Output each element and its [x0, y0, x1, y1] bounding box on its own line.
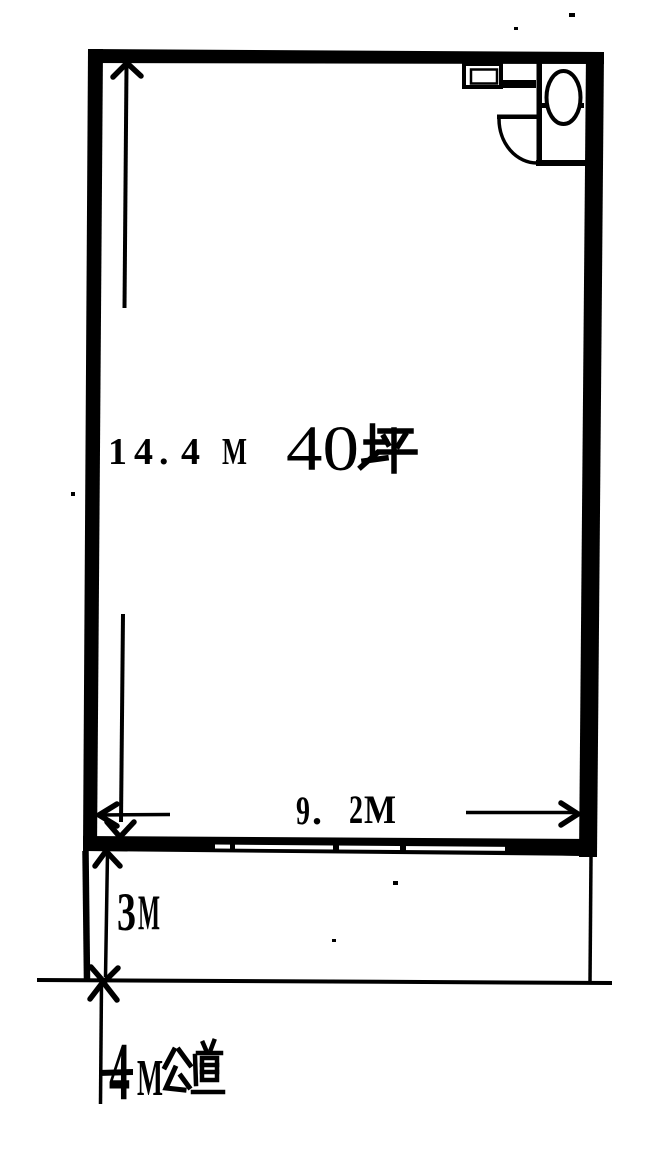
- svg-text:M: M: [364, 787, 396, 832]
- svg-text:3: 3: [117, 882, 136, 942]
- svg-text:M: M: [138, 884, 160, 940]
- svg-text:M: M: [222, 431, 247, 473]
- svg-text:9: 9: [296, 788, 310, 833]
- svg-text:2: 2: [349, 787, 363, 832]
- svg-text:.: .: [312, 788, 322, 833]
- svg-text:40: 40: [286, 413, 359, 485]
- svg-text:4: 4: [109, 1025, 130, 1117]
- svg-text:M: M: [137, 1050, 163, 1107]
